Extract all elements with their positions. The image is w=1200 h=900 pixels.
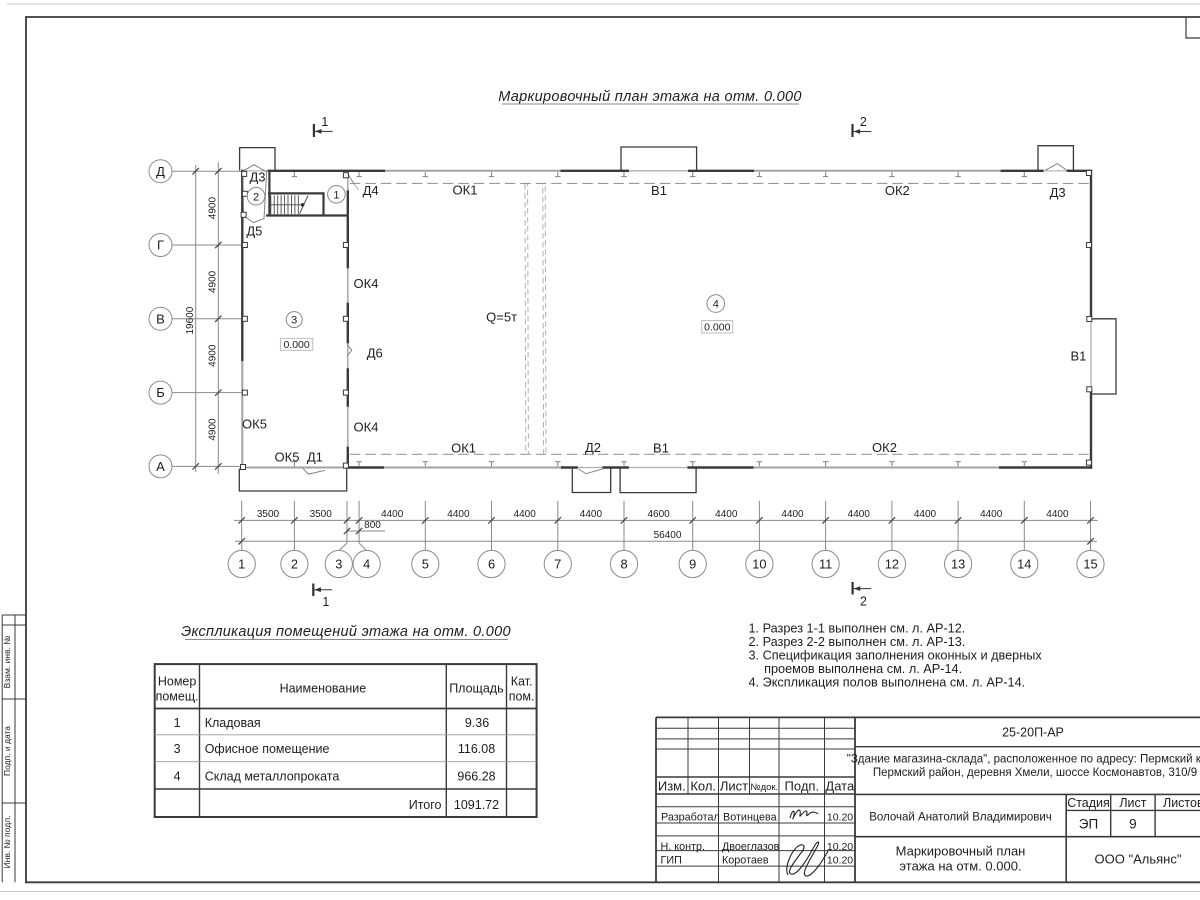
svg-text:9: 9 — [1129, 817, 1137, 832]
svg-text:ОК2: ОК2 — [872, 440, 897, 455]
svg-text:14: 14 — [1017, 557, 1031, 572]
svg-text:Д2: Д2 — [585, 440, 601, 455]
svg-text:4400: 4400 — [447, 509, 470, 520]
svg-text:Разработал: Разработал — [661, 812, 720, 824]
svg-text:В1: В1 — [651, 183, 667, 198]
svg-text:1: 1 — [322, 595, 329, 609]
svg-text:Д3: Д3 — [1050, 185, 1066, 200]
svg-text:15: 15 — [1083, 557, 1097, 572]
svg-text:Д6: Д6 — [367, 345, 383, 360]
svg-text:1: 1 — [333, 189, 339, 201]
svg-text:Д1: Д1 — [307, 450, 323, 465]
svg-text:Лист: Лист — [1119, 796, 1146, 810]
svg-text:2: 2 — [253, 191, 259, 203]
svg-text:Подп. и дата: Подп. и дата — [2, 726, 12, 776]
svg-text:Б: Б — [156, 385, 165, 400]
svg-text:8: 8 — [620, 557, 627, 572]
svg-text:Номер: Номер — [158, 675, 197, 689]
svg-text:Коротаев: Коротаев — [722, 855, 769, 867]
svg-text:ОК5: ОК5 — [275, 450, 300, 465]
svg-text:ОК4: ОК4 — [354, 276, 379, 291]
svg-text:966.28: 966.28 — [457, 769, 495, 783]
svg-text:В1: В1 — [653, 441, 669, 456]
svg-text:3: 3 — [174, 742, 181, 756]
svg-text:"Здание магазина-склада", расп: "Здание магазина-склада", расположенное … — [847, 753, 1200, 765]
svg-text:Листов: Листов — [1163, 796, 1200, 810]
svg-text:116.08: 116.08 — [458, 742, 495, 756]
svg-text:6: 6 — [488, 557, 495, 572]
svg-text:10: 10 — [752, 557, 766, 572]
svg-text:Лист: Лист — [720, 778, 748, 793]
svg-text:4. Экспликация полов выполнена: 4. Экспликация полов выполнена см. л. АР… — [749, 676, 1026, 690]
svg-text:Двоеглазов: Двоеглазов — [722, 841, 780, 853]
svg-text:56400: 56400 — [654, 530, 682, 541]
svg-text:ОК1: ОК1 — [451, 441, 476, 456]
svg-text:4400: 4400 — [580, 509, 603, 520]
svg-text:3500: 3500 — [310, 509, 333, 520]
svg-text:ОК1: ОК1 — [453, 183, 478, 198]
svg-text:ОК5: ОК5 — [242, 416, 267, 431]
svg-text:3: 3 — [335, 557, 342, 572]
svg-text:Площадь: Площадь — [449, 682, 503, 696]
svg-text:4400: 4400 — [1046, 509, 1069, 520]
svg-text:Склад металлопроката: Склад металлопроката — [205, 769, 340, 783]
svg-text:4400: 4400 — [715, 509, 738, 520]
svg-text:19600: 19600 — [185, 306, 196, 334]
svg-text:№док.: №док. — [750, 782, 778, 793]
svg-text:ЭП: ЭП — [1079, 817, 1098, 832]
svg-text:Вотинцева: Вотинцева — [723, 812, 777, 824]
svg-text:2: 2 — [291, 557, 298, 572]
svg-text:Д5: Д5 — [246, 224, 262, 239]
svg-text:1: 1 — [321, 115, 328, 129]
svg-text:4600: 4600 — [647, 509, 670, 520]
svg-text:Г: Г — [157, 238, 164, 253]
svg-text:4900: 4900 — [208, 197, 219, 220]
svg-text:4400: 4400 — [514, 509, 537, 520]
svg-text:пом.: пом. — [509, 690, 535, 704]
svg-text:Д3: Д3 — [249, 170, 265, 185]
svg-text:Q=5т: Q=5т — [486, 309, 517, 324]
svg-text:Кат.: Кат. — [511, 675, 533, 689]
svg-text:В1: В1 — [1070, 348, 1086, 363]
svg-text:Изм.: Изм. — [658, 778, 686, 793]
svg-text:13: 13 — [951, 557, 965, 572]
svg-text:Дата: Дата — [825, 778, 855, 793]
svg-text:1091.72: 1091.72 — [454, 798, 499, 812]
svg-text:Маркировочный план этажа на от: Маркировочный план этажа на отм. 0.000 — [498, 89, 801, 105]
svg-text:9: 9 — [689, 557, 696, 572]
svg-text:3500: 3500 — [257, 509, 280, 520]
svg-text:Взам. инв. №: Взам. инв. № — [2, 636, 12, 689]
svg-text:10.20: 10.20 — [827, 841, 853, 853]
svg-text:4400: 4400 — [381, 509, 404, 520]
svg-text:0.000: 0.000 — [283, 339, 309, 351]
svg-text:4900: 4900 — [208, 344, 219, 367]
svg-text:4400: 4400 — [980, 509, 1003, 520]
svg-text:2: 2 — [860, 595, 867, 609]
svg-text:4: 4 — [363, 557, 370, 572]
svg-text:Подп.: Подп. — [785, 778, 820, 793]
svg-text:1: 1 — [174, 716, 181, 730]
svg-text:10.20: 10.20 — [827, 855, 853, 867]
svg-text:10.20: 10.20 — [827, 812, 853, 824]
svg-text:Д: Д — [156, 164, 165, 179]
svg-text:Офисное помещение: Офисное помещение — [205, 742, 330, 756]
svg-text:3: 3 — [291, 315, 297, 327]
svg-text:этажа на отм. 0.000.: этажа на отм. 0.000. — [899, 858, 1021, 873]
svg-text:Н. контр.: Н. контр. — [661, 841, 706, 853]
svg-text:ОК4: ОК4 — [354, 419, 379, 434]
svg-text:Наименование: Наименование — [280, 682, 367, 696]
svg-text:0.000: 0.000 — [704, 322, 730, 334]
svg-text:3. Спецификация заполнения око: 3. Спецификация заполнения оконных и две… — [749, 649, 1043, 663]
svg-text:2. Разрез 2-2 выполнен см. л.: 2. Разрез 2-2 выполнен см. л. АР-13. — [749, 635, 966, 649]
svg-text:4900: 4900 — [208, 418, 219, 441]
svg-text:Волочай Анатолий Владимирович: Волочай Анатолий Владимирович — [869, 812, 1052, 824]
svg-text:Итого: Итого — [409, 798, 442, 812]
svg-text:Пермский район, деревня Хмели,: Пермский район, деревня Хмели, шоссе Кос… — [873, 767, 1197, 779]
svg-text:Экспликация помещений этажа на: Экспликация помещений этажа на отм. 0.00… — [181, 624, 511, 640]
svg-text:4400: 4400 — [848, 509, 871, 520]
svg-text:7: 7 — [554, 557, 561, 572]
svg-text:800: 800 — [364, 520, 381, 531]
svg-text:Кладовая: Кладовая — [205, 716, 261, 730]
svg-text:ГИП: ГИП — [661, 855, 682, 867]
svg-text:1. Разрез 1-1 выполнен см. л.: 1. Разрез 1-1 выполнен см. л. АР-12. — [749, 621, 966, 635]
svg-text:2: 2 — [860, 115, 867, 129]
svg-text:Маркировочный план: Маркировочный план — [896, 844, 1026, 859]
svg-text:4: 4 — [713, 299, 719, 311]
svg-text:1: 1 — [238, 557, 245, 572]
svg-text:помещ.: помещ. — [156, 690, 199, 704]
svg-text:9.36: 9.36 — [465, 716, 489, 730]
svg-text:Д4: Д4 — [363, 183, 379, 198]
svg-text:25-20П-АР: 25-20П-АР — [1002, 726, 1064, 740]
svg-text:4400: 4400 — [914, 509, 937, 520]
svg-text:ОК2: ОК2 — [885, 183, 910, 198]
svg-text:В: В — [156, 311, 165, 326]
svg-text:11: 11 — [819, 557, 832, 572]
svg-text:4900: 4900 — [208, 270, 219, 293]
svg-text:проемов выполнена см. л. АР-14: проемов выполнена см. л. АР-14. — [764, 662, 962, 676]
svg-text:ООО "Альянс": ООО "Альянс" — [1095, 851, 1182, 866]
svg-text:Инв. № подл.: Инв. № подл. — [2, 816, 12, 869]
svg-text:А: А — [156, 459, 165, 474]
svg-text:Стадия: Стадия — [1067, 796, 1110, 810]
svg-text:4400: 4400 — [781, 509, 804, 520]
svg-text:Кол.: Кол. — [690, 778, 716, 793]
svg-text:5: 5 — [422, 557, 429, 572]
svg-text:12: 12 — [885, 557, 899, 572]
svg-text:4: 4 — [174, 769, 181, 783]
